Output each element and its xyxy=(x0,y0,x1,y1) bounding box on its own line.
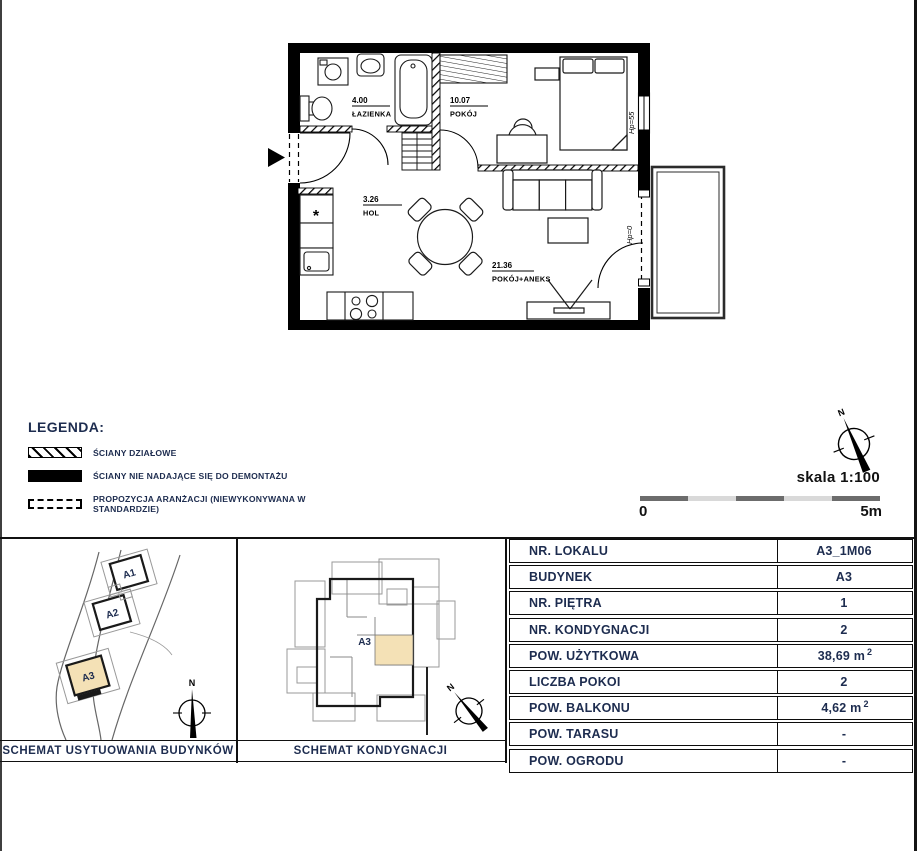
kitchen-cabinet xyxy=(300,223,333,248)
table-row: POW. TARASU- xyxy=(509,722,913,746)
living-area: 21.36 xyxy=(492,261,513,270)
site-plan: A1 A2 A3 N xyxy=(0,537,236,740)
legend-item-partition-walls: ŚCIANY DZIAŁOWE xyxy=(28,447,358,458)
dining-table xyxy=(407,197,485,277)
table-row: POW. UŻYTKOWA38,69 m2 xyxy=(509,644,913,668)
north-letter: N xyxy=(445,681,456,693)
balcony xyxy=(652,167,724,318)
balcony-door-sill-height: Hp=0 xyxy=(625,225,634,244)
page-right-border xyxy=(914,0,917,851)
highlighted-unit xyxy=(375,635,413,665)
hall-area: 3.26 xyxy=(363,195,379,204)
apartment-spec-table: NR. LOKALUA3_1M06 BUDYNEKA3 NR. PIĘTRA1 … xyxy=(509,539,913,775)
table-row: NR. LOKALUA3_1M06 xyxy=(509,539,913,563)
dashed-wall-swatch-icon xyxy=(28,499,82,509)
caption-band: SCHEMAT USYTUOWANIA BUDYNKÓW SCHEMAT KON… xyxy=(0,740,506,762)
legend-item-structural-walls: ŚCIANY NIE NADAJĄCE SIĘ DO DEMONTAŻU xyxy=(28,470,358,482)
window-sill-height: Hp=55 xyxy=(627,111,636,134)
fridge-symbol: * xyxy=(313,208,320,225)
hatched-wall-swatch-icon xyxy=(28,447,82,458)
scale-start: 0 xyxy=(639,503,647,520)
bathroom-door xyxy=(352,129,388,165)
nightstand xyxy=(535,68,559,80)
compass-rose: N xyxy=(812,400,896,480)
coffee-table xyxy=(548,218,588,243)
table-row: LICZBA POKOI2 xyxy=(509,670,913,694)
desk xyxy=(497,135,547,163)
bedroom-door xyxy=(440,130,478,168)
sofa xyxy=(503,170,602,210)
toilet xyxy=(300,96,309,121)
legend-item-arrangement: PROPOZYCJA ARANŻACJI (NIEWYKONYWANA W ST… xyxy=(28,494,358,514)
bathroom-area: 4.00 xyxy=(352,96,368,105)
solid-wall-swatch-icon xyxy=(28,470,82,482)
legend: LEGENDA: ŚCIANY DZIAŁOWE ŚCIANY NIE NADA… xyxy=(28,419,358,514)
bedroom-area: 10.07 xyxy=(450,96,471,105)
bathroom-name: ŁAZIENKA xyxy=(352,110,392,119)
apartment-card-page: * xyxy=(0,0,920,851)
scale-bar xyxy=(640,496,880,501)
hall-shelf xyxy=(402,133,432,170)
site-plan-caption: SCHEMAT USYTUOWANIA BUDYNKÓW xyxy=(0,741,236,761)
floor-schematic-caption: SCHEMAT KONDYGNACJI xyxy=(236,741,505,761)
living-room-furniture xyxy=(407,170,610,319)
table-row: NR. PIĘTRA1 xyxy=(509,591,913,615)
bedroom-furniture xyxy=(497,57,627,163)
balcony-door xyxy=(598,190,650,288)
scale-end: 5m xyxy=(848,503,882,520)
legend-title: LEGENDA: xyxy=(28,419,358,435)
floor-plan: * xyxy=(260,38,740,338)
bedroom-name: POKÓJ xyxy=(450,110,477,119)
panel-divider-2 xyxy=(505,537,507,763)
living-name: POKÓJ+ANEKS xyxy=(492,275,551,284)
table-row: POW. OGRODU- xyxy=(509,749,913,773)
north-letter: N xyxy=(836,407,846,419)
neighbor-units xyxy=(287,559,455,721)
table-row: POW. BALKONU4,62 m2 xyxy=(509,696,913,720)
building-label: A3 xyxy=(358,637,371,648)
scale-label: skala 1:100 xyxy=(760,469,880,486)
table-row: BUDYNEKA3 xyxy=(509,565,913,589)
north-needle-icon xyxy=(841,416,870,473)
schematic-compass: N xyxy=(432,672,499,740)
hall-name: HOL xyxy=(363,209,380,218)
north-letter: N xyxy=(189,678,196,688)
entrance-door xyxy=(290,133,351,183)
north-needle-icon xyxy=(190,689,197,738)
floor-schematic: A3 N xyxy=(237,537,505,740)
site-compass: N xyxy=(173,678,211,738)
wardrobe xyxy=(440,55,507,83)
table-row: NR. KONDYGNACJI2 xyxy=(509,618,913,642)
entrance-arrow-icon xyxy=(268,148,285,167)
bedroom-window xyxy=(639,91,650,135)
